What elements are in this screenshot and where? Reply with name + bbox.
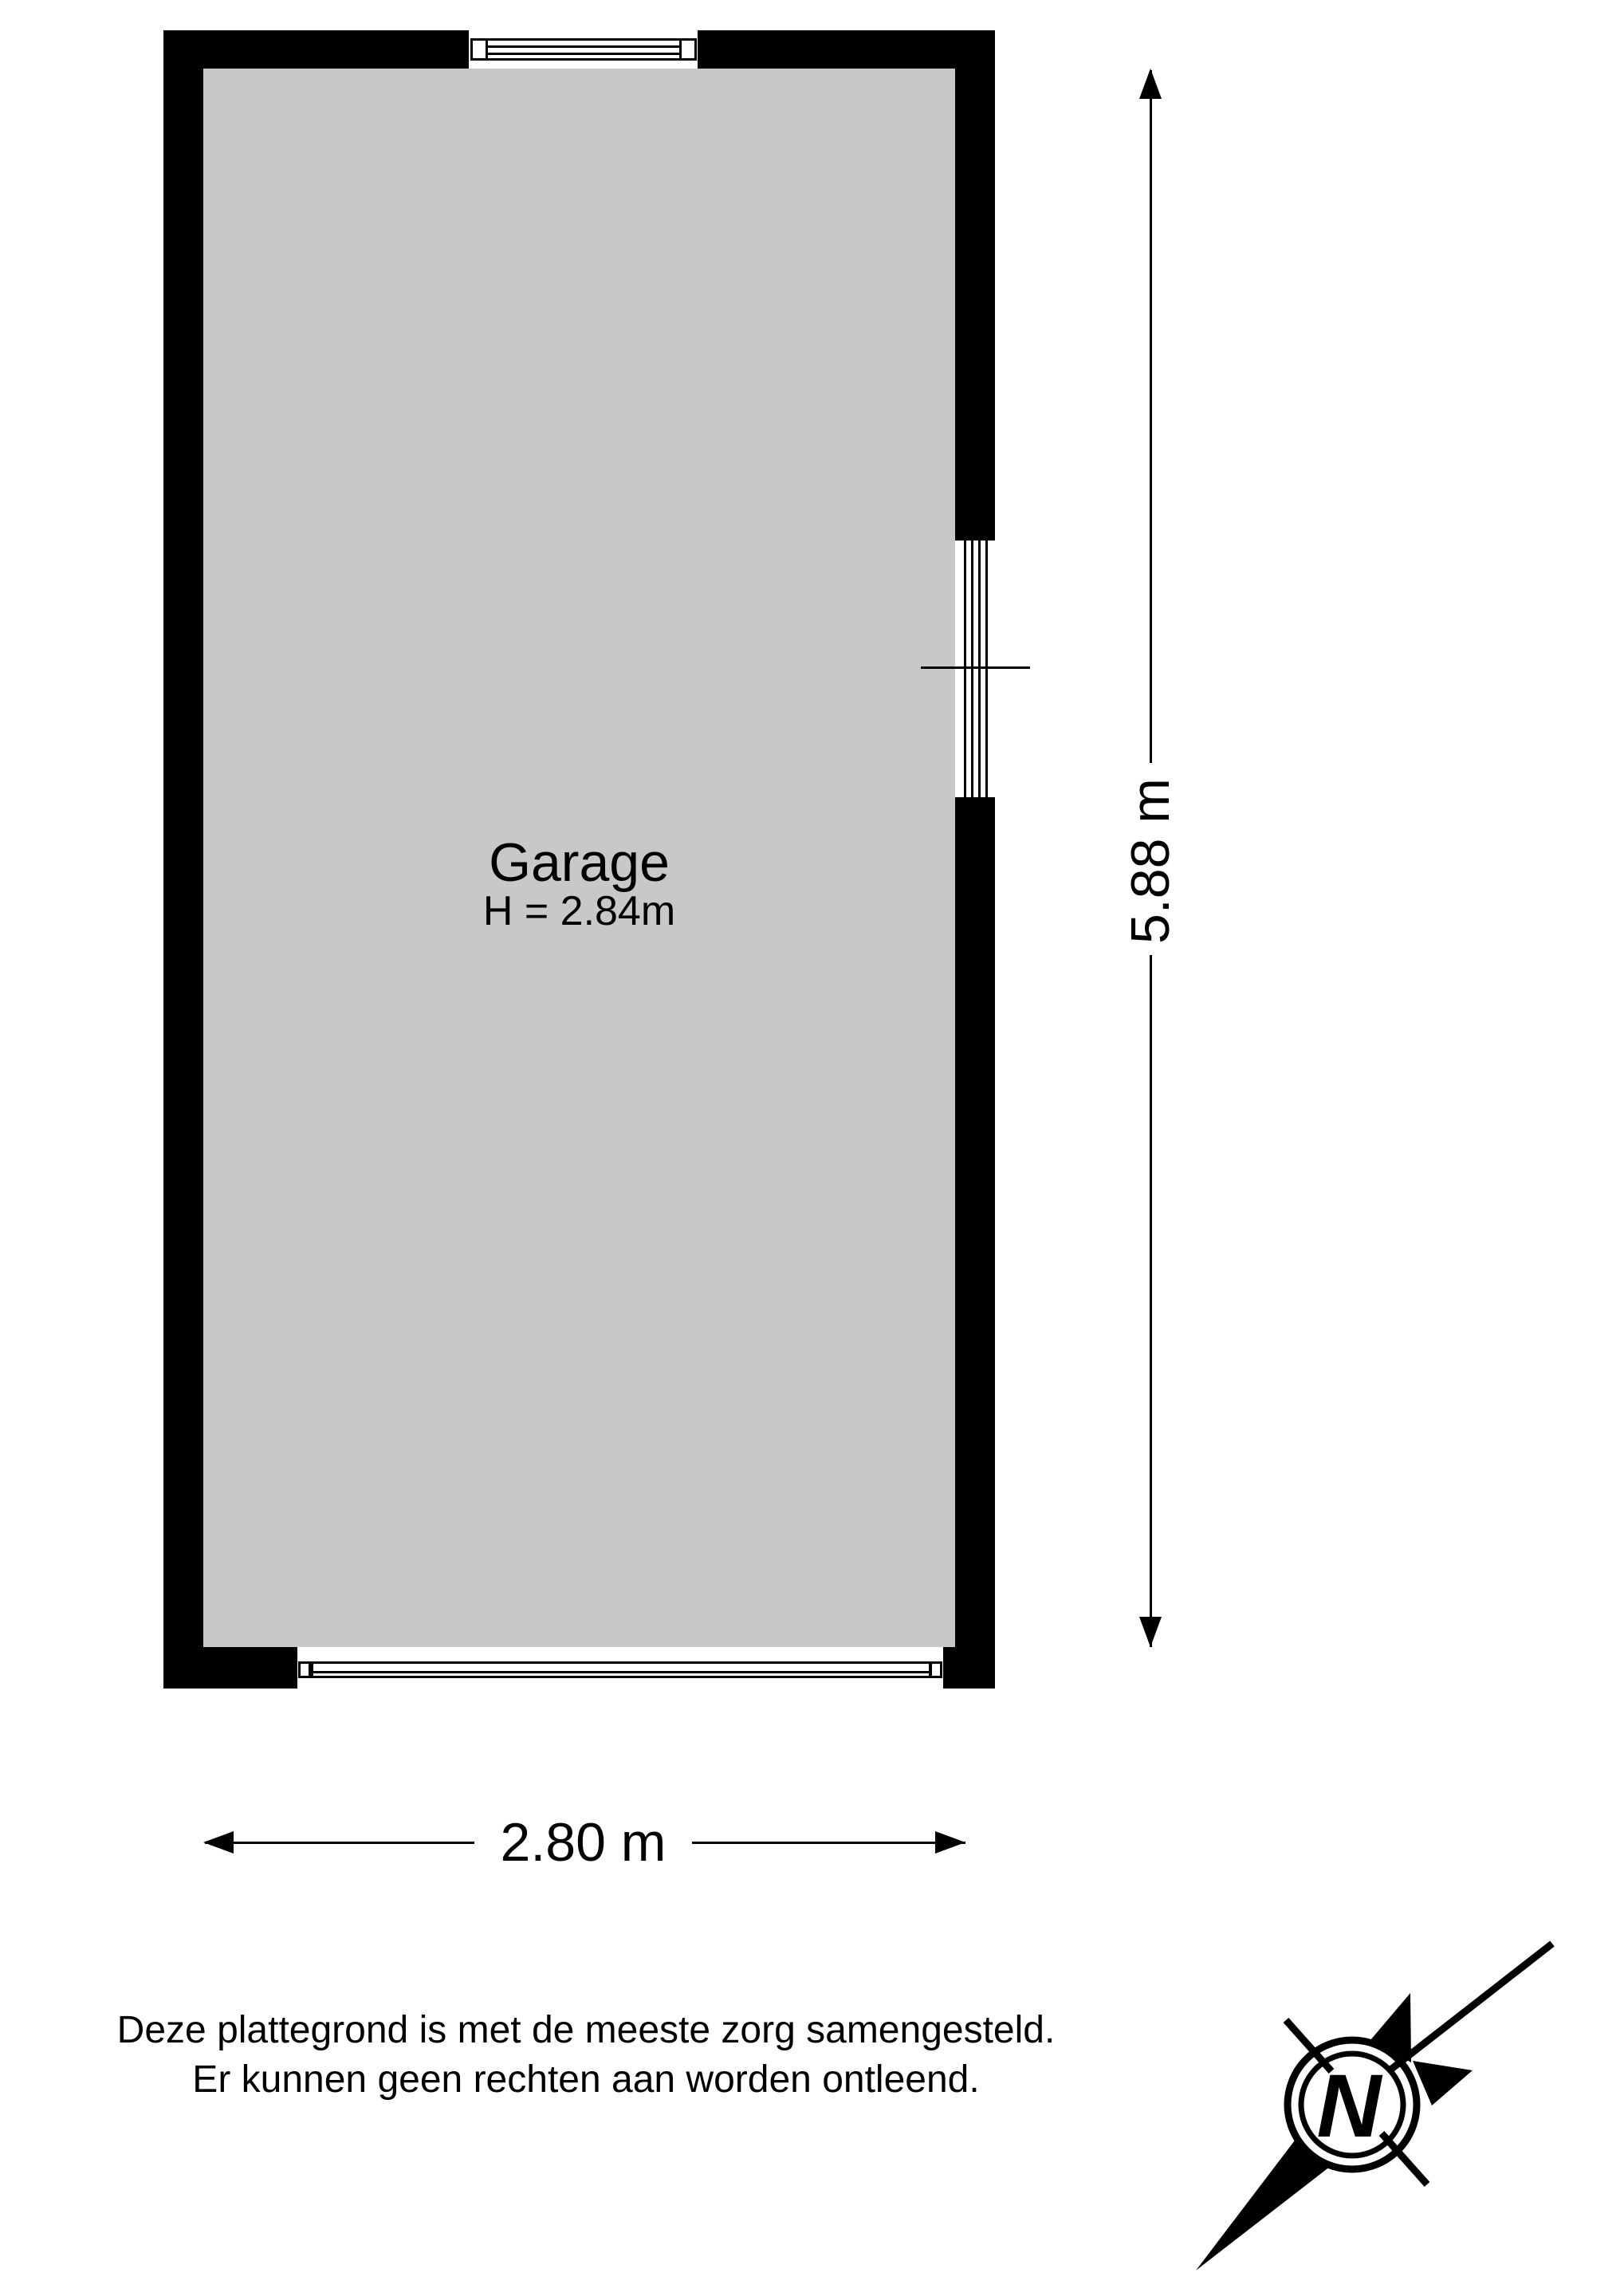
room-height-label: H = 2.84m <box>203 889 955 934</box>
dim-vertical-line-upper <box>1150 70 1152 763</box>
right-window-pane-line-1 <box>964 541 966 797</box>
dim-vertical-arrow-up-icon <box>1139 69 1162 99</box>
top-window-frame <box>470 38 697 61</box>
top-window-glazing-line-1 <box>488 45 679 48</box>
wall-top-right-segment <box>698 30 995 69</box>
floor-plan-page: 5.88 m 2.80 m Garage H = 2.84m Deze plat… <box>0 0 1624 2296</box>
compass-star-right <box>1413 2061 1473 2105</box>
right-window-pane-line-4 <box>985 541 988 797</box>
dim-vertical-label: 5.88 m <box>1123 733 1178 989</box>
dim-vertical-line-lower <box>1150 955 1152 1647</box>
right-window-sill-marker <box>921 666 1030 669</box>
garage-door-post-right <box>930 1661 942 1678</box>
disclaimer-line-2: Er kunnen geen rechten aan worden ontlee… <box>68 2055 1104 2105</box>
garage-door-panel <box>311 1661 931 1678</box>
wall-top-left-segment <box>163 30 469 69</box>
dim-horizontal-line-left <box>205 1842 474 1844</box>
wall-bottom-right-corner <box>943 1647 995 1689</box>
dim-horizontal-arrow-right-icon <box>935 1831 965 1854</box>
top-window-glazing-line-2 <box>488 53 679 55</box>
right-window-pane-line-2 <box>971 541 973 797</box>
room-label: Garage <box>203 835 955 890</box>
wall-bottom-left-corner <box>163 1647 297 1689</box>
disclaimer-text: Deze plattegrond is met de meeste zorg s… <box>68 2006 1104 2105</box>
garage-door-panel-line <box>311 1671 931 1673</box>
wall-left <box>163 30 203 1689</box>
wall-right-lower <box>955 797 995 1689</box>
dim-horizontal-label: 2.80 m <box>474 1815 692 1869</box>
disclaimer-line-1: Deze plattegrond is met de meeste zorg s… <box>68 2006 1104 2055</box>
top-window-mullion-left <box>486 38 488 61</box>
wall-right-upper <box>955 30 995 541</box>
dim-vertical-arrow-down-icon <box>1139 1617 1162 1647</box>
compass-needle-line <box>1390 1944 1552 2070</box>
top-window-mullion-right <box>679 38 682 61</box>
compass-north-label: N <box>1317 2056 1383 2156</box>
dim-horizontal-arrow-left-icon <box>203 1831 234 1854</box>
garage-door-post-left <box>298 1661 311 1678</box>
dim-horizontal-line-right <box>692 1842 965 1844</box>
compass-north-icon: N <box>1164 1913 1595 2296</box>
right-window-pane-line-3 <box>978 541 981 797</box>
